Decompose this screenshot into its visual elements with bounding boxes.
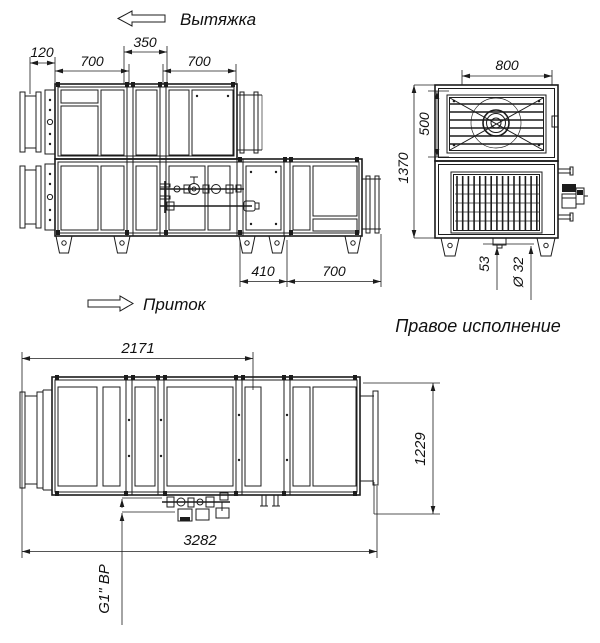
- plan-view: 2171: [20, 340, 440, 625]
- dim-3282-label: 3282: [183, 532, 217, 549]
- coil-grid: [455, 176, 539, 230]
- front-left-flanges: [20, 90, 55, 230]
- front-top-right-flange: [237, 92, 262, 153]
- plan-left-flange: [20, 390, 52, 490]
- plan-piping-assembly: [162, 493, 280, 521]
- dim-800-label: 800: [495, 57, 519, 73]
- dim-500-label: 500: [416, 112, 432, 136]
- front-piping-assembly: [160, 177, 259, 213]
- coil-actuator: [558, 167, 588, 221]
- dim-120-label: 120: [30, 44, 54, 60]
- dim-53-label: 53: [476, 256, 492, 272]
- supply-arrow-icon: [88, 296, 133, 311]
- end-view-coil-section: [435, 161, 588, 238]
- drain-dimensions: 53 Ø 32: [476, 244, 534, 300]
- dim-1229-label: 1229: [412, 432, 429, 466]
- plan-dim-2171: 2171: [22, 340, 253, 558]
- dim-350-label: 350: [133, 34, 157, 50]
- dim-700b-label: 700: [187, 53, 211, 69]
- plan-dim-1229: 1229: [363, 383, 440, 514]
- front-top-row: [55, 82, 237, 159]
- dim-700a-label: 700: [80, 53, 104, 69]
- exhaust-label: Вытяжка: [180, 10, 256, 29]
- front-bottom-right-flange: [362, 176, 381, 233]
- supply-label: Приток: [143, 295, 207, 314]
- drawing-title: Правое исполнение: [395, 316, 561, 336]
- pipe-thread-callout: G1" ВР: [96, 498, 175, 625]
- plan-body: [52, 375, 360, 496]
- end-view-feet: [441, 238, 555, 256]
- end-view: 800 1370 500: [395, 57, 588, 300]
- plan-right-flange: [360, 391, 378, 485]
- dim-700c-label: 700: [322, 263, 346, 279]
- front-view: Вытяжка 120 700 350 700: [20, 10, 381, 314]
- exhaust-arrow-icon: [118, 11, 165, 26]
- plan-dim-3282: 3282: [22, 486, 377, 558]
- dim-410-label: 410: [251, 263, 275, 279]
- front-feet: [56, 236, 361, 253]
- pipe-thread-label: G1" ВР: [96, 564, 113, 614]
- front-bottom-row: [55, 157, 362, 236]
- dim-1370-label: 1370: [395, 152, 411, 183]
- end-view-fan-section: [435, 85, 558, 161]
- ahu-drawing-canvas: Вытяжка 120 700 350 700: [0, 0, 600, 643]
- technical-drawing: Вытяжка 120 700 350 700: [0, 0, 600, 643]
- dim-2171-label: 2171: [120, 340, 154, 357]
- dim-32-label: Ø 32: [510, 257, 526, 289]
